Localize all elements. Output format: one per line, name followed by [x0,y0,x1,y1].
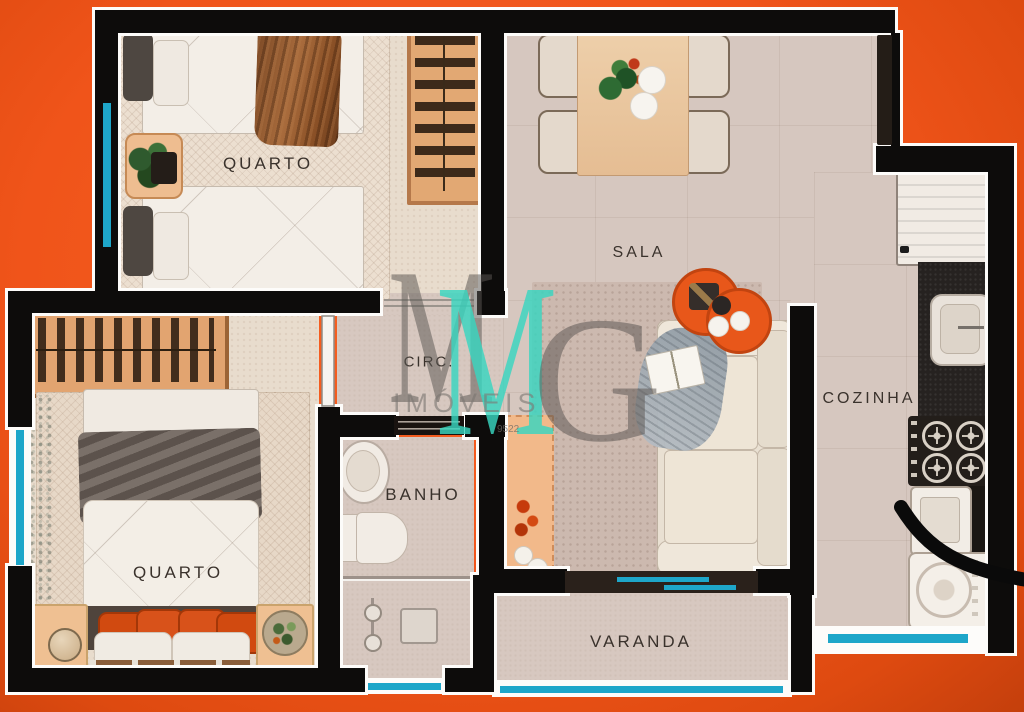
black-marker-curve [0,0,1024,712]
floor-plan-canvas: QUARTO SALA COZINHA CIRC. BANHO QUARTO V… [0,0,1024,712]
